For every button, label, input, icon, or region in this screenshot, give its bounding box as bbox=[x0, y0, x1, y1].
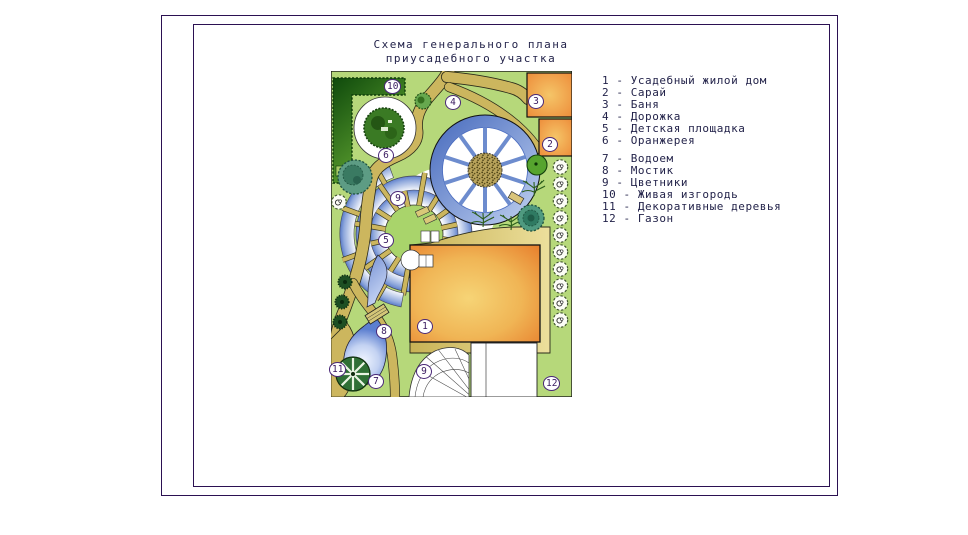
legend-item: 12 - Газон bbox=[602, 213, 781, 225]
plan-markers: 1043269518711912 bbox=[331, 71, 572, 397]
legend-item: 6 - Оранжерея bbox=[602, 135, 781, 147]
plan-marker: 1 bbox=[417, 319, 433, 334]
site-plan: 1043269518711912 bbox=[331, 71, 572, 397]
plan-marker: 8 bbox=[376, 324, 392, 339]
plan-marker: 9 bbox=[390, 191, 406, 206]
plan-marker: 9 bbox=[416, 364, 432, 379]
legend: 1 - Усадебный жилой дом2 - Сарай3 - Баня… bbox=[602, 75, 781, 225]
plan-marker: 12 bbox=[543, 376, 560, 391]
legend-item: 7 - Водоем bbox=[602, 153, 781, 165]
plan-marker: 3 bbox=[528, 94, 544, 109]
plan-marker: 2 bbox=[542, 137, 558, 152]
drawing-title-line1: Схема генерального плана bbox=[331, 38, 611, 52]
drawing-title-line2: приусадебного участка bbox=[331, 52, 611, 66]
plan-marker: 4 bbox=[445, 95, 461, 110]
plan-marker: 10 bbox=[384, 79, 401, 94]
plan-marker: 7 bbox=[368, 374, 384, 389]
plan-marker: 6 bbox=[378, 148, 394, 163]
legend-item: 8 - Мостик bbox=[602, 165, 781, 177]
drawing-title: Схема генерального плана приусадебного у… bbox=[331, 38, 611, 65]
plan-marker: 11 bbox=[329, 362, 346, 377]
plan-marker: 5 bbox=[378, 233, 394, 248]
